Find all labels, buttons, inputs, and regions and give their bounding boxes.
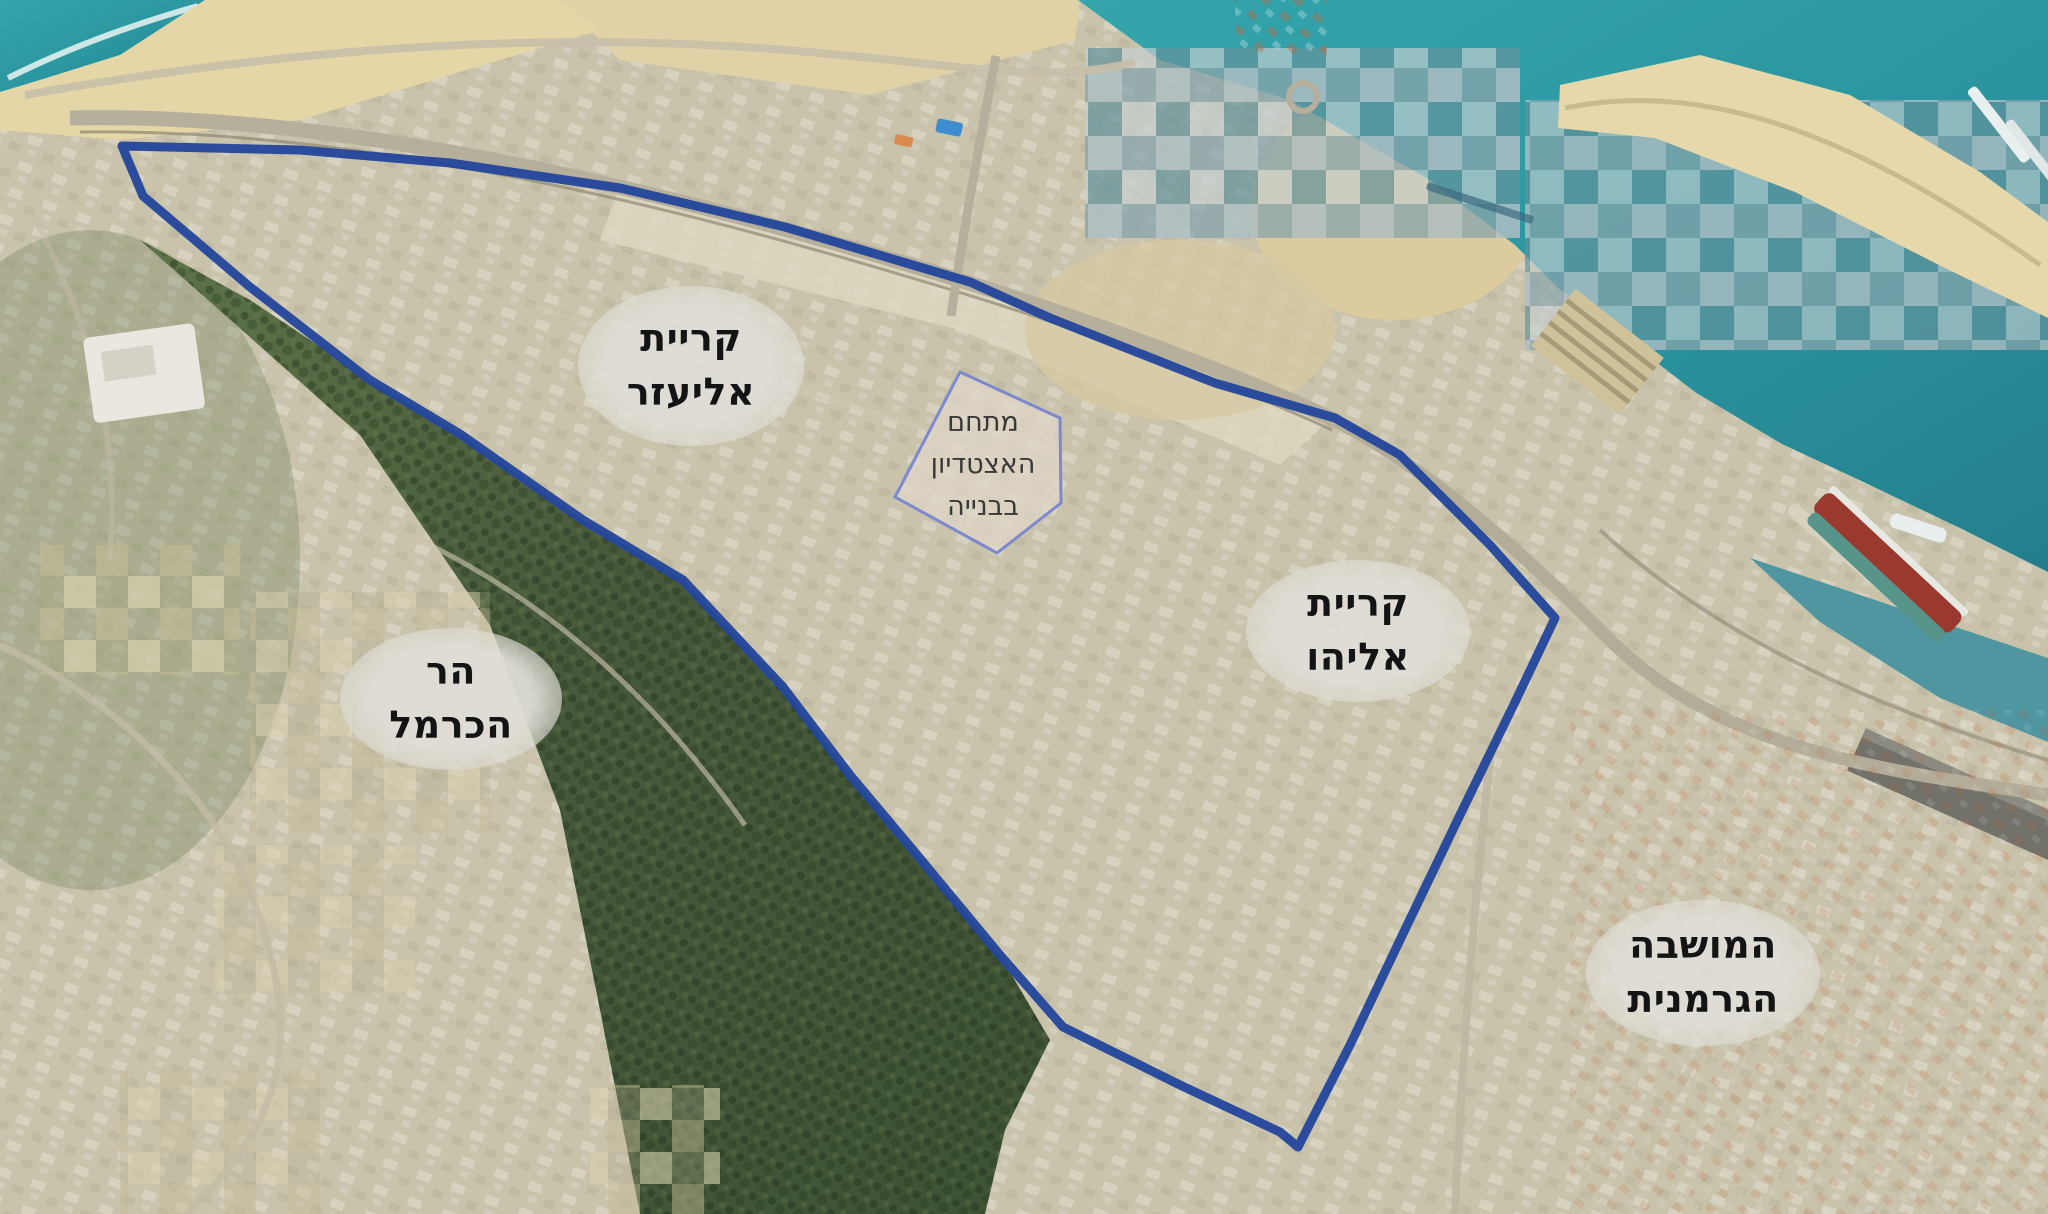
region-label-kiryat-eliyahu: קריית אליהו	[1246, 560, 1470, 702]
region-label-line: אליהו	[1306, 631, 1410, 685]
satellite-map: קריית אליעזר קריית אליהו הר הכרמל המושבה…	[0, 0, 2048, 1214]
stadium-site-label: מתחם האצטדיון בבנייה	[908, 402, 1058, 528]
orange-roofs-north	[1235, 0, 1327, 56]
privacy-blur-land-4	[120, 1070, 320, 1214]
region-label-line: אליעזר	[627, 366, 755, 420]
privacy-blur-water-west	[1085, 48, 1520, 238]
privacy-blur-land-5	[590, 1085, 720, 1214]
region-label-kiryat-eliezer: קריית אליעזר	[578, 286, 804, 446]
region-label-line: הכרמל	[389, 699, 513, 753]
region-label-line: הר	[426, 645, 476, 699]
privacy-blur-land-3	[215, 845, 415, 995]
region-label-line: קריית	[640, 312, 742, 366]
stadium-site-label-line: האצטדיון	[908, 444, 1058, 486]
stadium-site-label-line: מתחם	[908, 402, 1058, 444]
region-label-line: המושבה	[1629, 919, 1777, 973]
stadium-site-label-line: בבנייה	[908, 486, 1058, 528]
region-label-har-hacarmel: הר הכרמל	[340, 628, 562, 770]
white-building-complex	[83, 323, 206, 424]
region-label-hamoshava-hagermanit: המושבה הגרמנית	[1586, 900, 1820, 1046]
region-label-line: הגרמנית	[1627, 973, 1778, 1027]
region-label-line: קריית	[1307, 577, 1409, 631]
privacy-blur-land-1	[40, 545, 240, 675]
